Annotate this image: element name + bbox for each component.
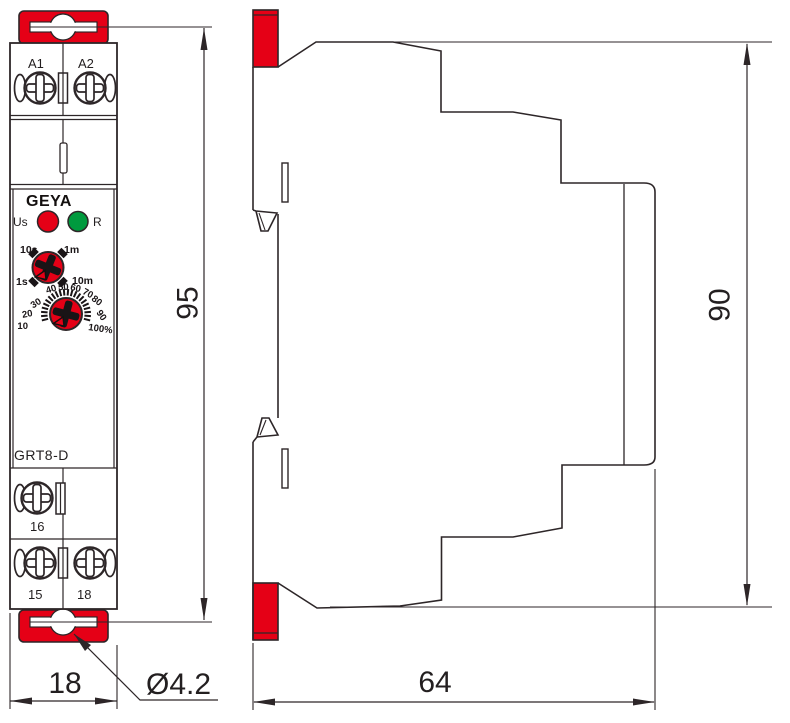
- arrowhead: [253, 699, 275, 706]
- arrowhead: [95, 698, 117, 705]
- arrowhead: [201, 598, 208, 620]
- brand-logo: GEYA: [26, 193, 72, 210]
- screw-16: [22, 483, 53, 514]
- side-front-face: [253, 67, 278, 640]
- side-slot-upper: [282, 163, 288, 202]
- dim-value-64: 64: [418, 666, 451, 699]
- screw-15: [25, 548, 56, 579]
- arrowhead: [201, 28, 208, 50]
- side-slot-lower: [282, 449, 288, 488]
- din-clip-notch-upper: [253, 210, 277, 231]
- front-view: A1 A2 GEYA Us R: [10, 11, 117, 642]
- side-view: [253, 10, 655, 640]
- dimensions: 95 18 Ø4.2 90: [10, 27, 772, 710]
- led-supply: [38, 211, 59, 232]
- dim-value-hole: Ø4.2: [146, 668, 211, 701]
- arrowhead: [744, 43, 751, 65]
- model-label: GRT8-D: [14, 447, 69, 463]
- side-top-clip: [253, 10, 278, 67]
- dim-value-18: 18: [48, 667, 81, 700]
- side-bottom-clip: [253, 583, 278, 640]
- dim-side-height: 90: [316, 42, 772, 607]
- scale-label-10: 10: [17, 321, 28, 332]
- screw-a1: [25, 73, 56, 104]
- terminal-label-a1: A1: [28, 56, 44, 71]
- screw-a2: [75, 73, 106, 104]
- front-bottom-mounting-clip: [19, 609, 108, 642]
- terminal-label-15: 15: [28, 587, 42, 602]
- led-reset: [68, 212, 88, 232]
- arrowhead: [633, 699, 655, 706]
- arrowhead: [10, 698, 32, 705]
- terminal-label-16: 16: [30, 519, 44, 534]
- terminal-label-a2: A2: [78, 56, 94, 71]
- terminal-label-18: 18: [77, 587, 91, 602]
- scale-label-20: 20: [21, 308, 33, 321]
- technical-drawing-canvas: A1 A2 GEYA Us R: [0, 0, 790, 723]
- screw-18: [75, 548, 106, 579]
- dim-side-depth: 64: [253, 469, 655, 710]
- range-label-10s: 10s: [20, 244, 38, 256]
- dim-value-90: 90: [704, 288, 737, 321]
- relay-dimension-drawing: A1 A2 GEYA Us R: [0, 0, 790, 723]
- range-label-1m: 1m: [64, 244, 79, 256]
- range-label-1s: 1s: [16, 276, 28, 288]
- led-supply-label: Us: [13, 215, 28, 229]
- dim-mount-hole: Ø4.2: [74, 634, 218, 701]
- scale-label-50: 50: [58, 282, 69, 294]
- led-reset-label: R: [93, 215, 102, 229]
- side-profile-outline: [278, 42, 655, 608]
- scale-label-60: 60: [69, 282, 82, 295]
- dim-value-95: 95: [172, 286, 205, 319]
- arrowhead: [744, 584, 751, 606]
